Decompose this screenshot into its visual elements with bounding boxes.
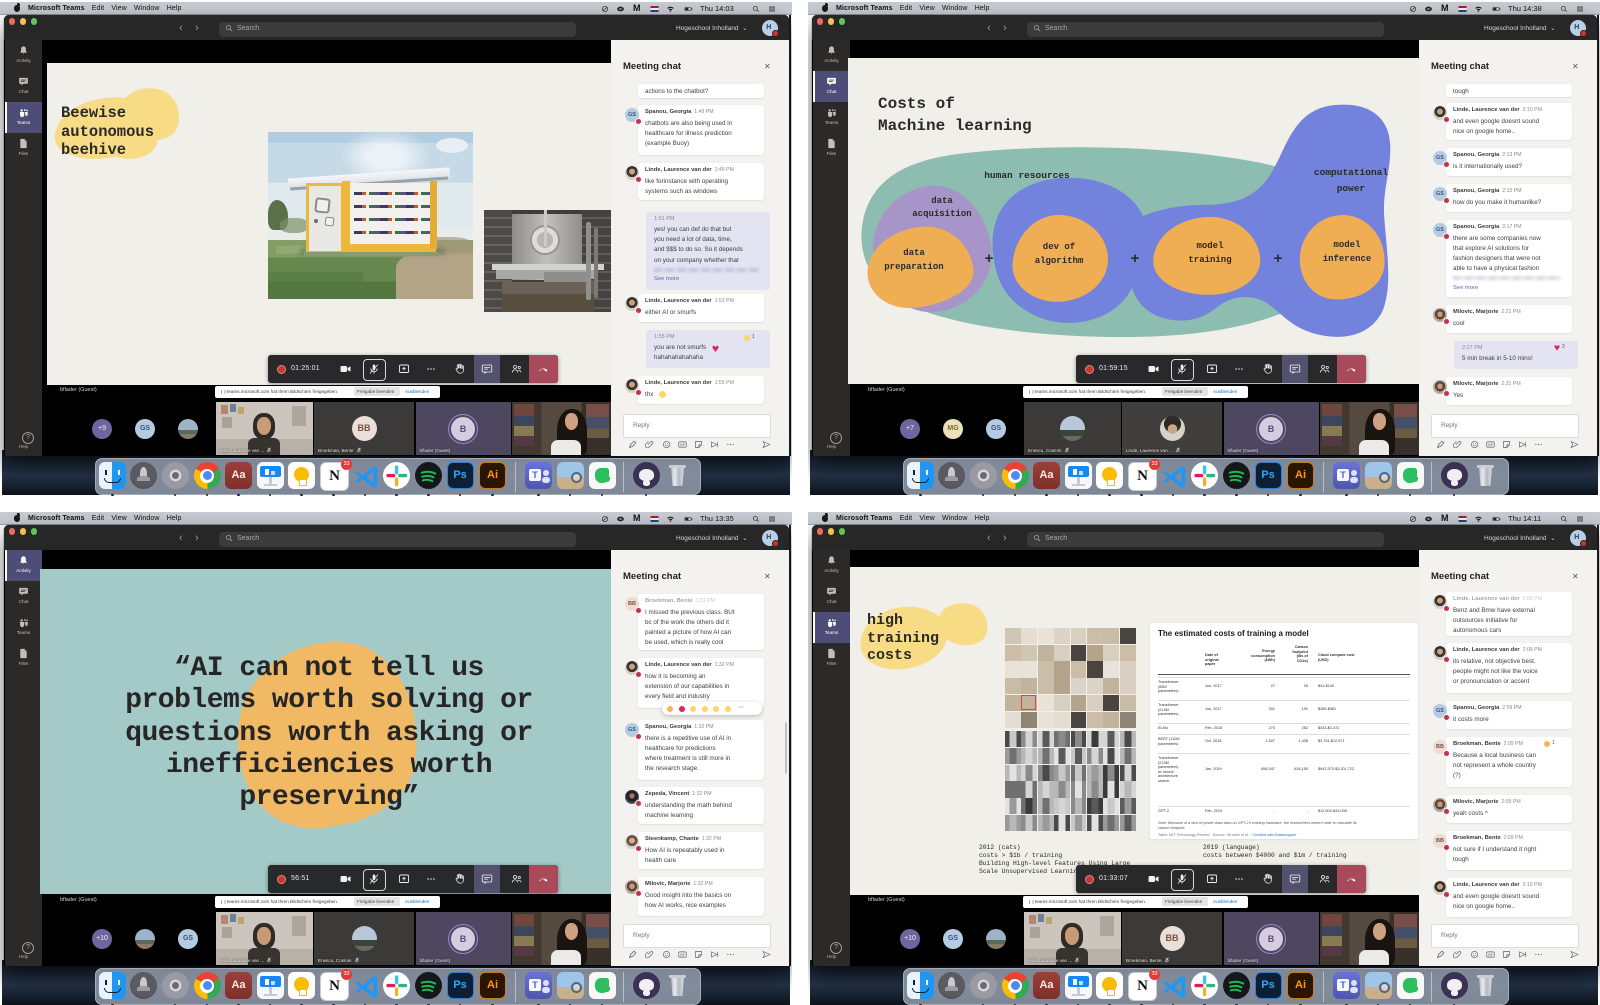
svg-text:GIF: GIF bbox=[680, 443, 686, 447]
svg-text:GIF: GIF bbox=[680, 953, 686, 957]
svg-text:GIF: GIF bbox=[1488, 953, 1494, 957]
svg-text:GIF: GIF bbox=[1488, 443, 1494, 447]
